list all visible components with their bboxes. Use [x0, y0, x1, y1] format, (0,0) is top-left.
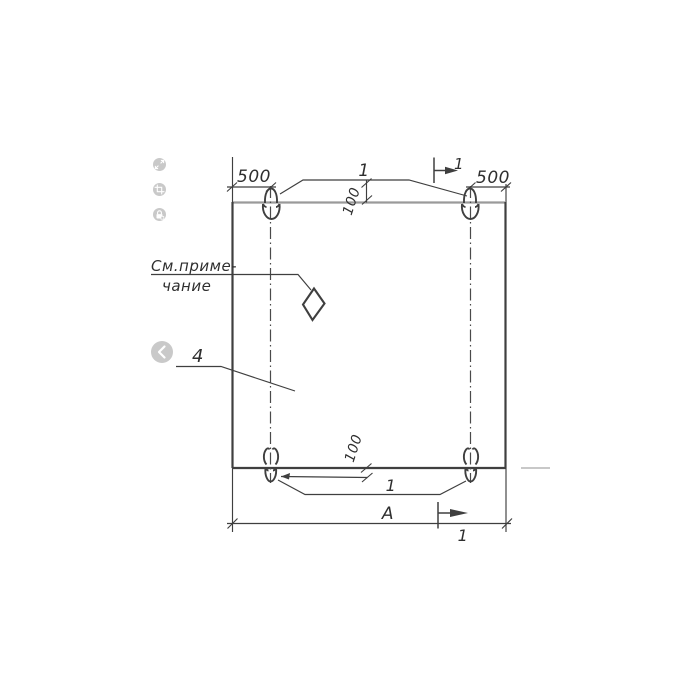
dimension-500-left: 500: [227, 167, 276, 192]
section-bottom-label: 1: [458, 526, 469, 545]
lock-icon: [153, 208, 166, 221]
part-callout-label: 4: [192, 346, 204, 367]
overall-width-label: А: [381, 504, 394, 524]
dimension-100-top: 100: [340, 179, 372, 218]
section-mark-top: 1: [434, 155, 464, 183]
chevron-left-icon: [151, 341, 173, 363]
note-line2: чание: [162, 277, 211, 295]
dimension-100-bottom: 100: [281, 432, 373, 482]
part-callout: 4: [176, 346, 295, 391]
technical-drawing-canvas: 500 500 1 100 1 См.приме- чание: [0, 0, 700, 700]
dimension-500-right: 500: [466, 168, 512, 192]
lock-button[interactable]: [153, 208, 166, 221]
image-viewer: 500 500 1 100 1 См.приме- чание: [0, 0, 700, 700]
expand-icon: [153, 158, 166, 171]
dim-100-top-label: 100: [340, 185, 364, 217]
callout-loops-bottom: 1: [278, 476, 466, 495]
callout-bottom-label: 1: [386, 476, 397, 495]
lifting-loop-top-left: [263, 189, 280, 220]
crop-button[interactable]: [153, 183, 166, 196]
note-line1: См.приме-: [151, 257, 237, 275]
expand-button[interactable]: [153, 158, 166, 171]
dim-500-right-label: 500: [476, 168, 510, 188]
callout-loops-top: 1: [280, 161, 467, 196]
dimension-overall-width: А: [227, 504, 512, 529]
callout-top-label: 1: [358, 161, 369, 181]
diamond-mark: [303, 289, 325, 321]
section-top-label: 1: [454, 155, 464, 173]
previous-button[interactable]: [151, 341, 173, 363]
dim-100-bottom-label: 100: [342, 432, 366, 464]
note-callout: См.приме- чание: [151, 257, 325, 320]
crop-icon: [153, 183, 166, 196]
dim-500-left-label: 500: [237, 167, 271, 187]
loop-centerlines: [271, 186, 471, 483]
